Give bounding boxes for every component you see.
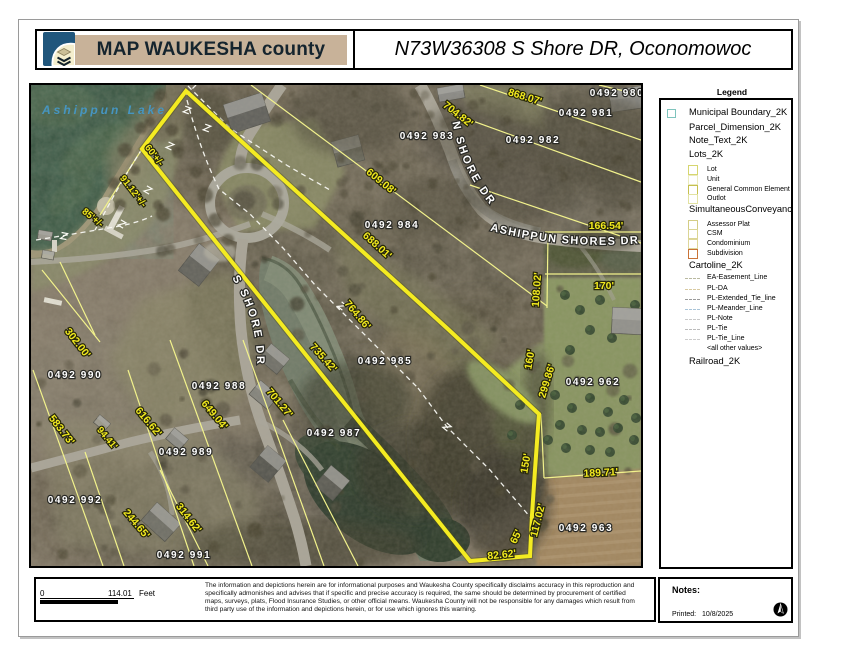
svg-text:0492 981: 0492 981 [559,108,614,119]
svg-text:0492 963: 0492 963 [559,523,614,534]
svg-text:0492 985: 0492 985 [358,356,413,367]
svg-text:189.71': 189.71' [583,466,618,480]
svg-text:0492 983: 0492 983 [400,131,455,142]
svg-text:0492 980: 0492 980 [590,88,641,99]
svg-text:0492 962: 0492 962 [566,377,621,388]
svg-text:Ashippun Lake: Ashippun Lake [41,103,167,117]
svg-text:0492 989: 0492 989 [159,447,214,458]
svg-text:0492 992: 0492 992 [48,495,103,506]
svg-text:0492 984: 0492 984 [365,220,420,231]
svg-text:0492 987: 0492 987 [307,428,362,439]
svg-text:108.02': 108.02' [530,272,544,307]
svg-text:166.54': 166.54' [589,220,624,232]
svg-text:0492 991: 0492 991 [157,550,212,561]
svg-text:0492 990: 0492 990 [48,370,103,381]
svg-text:170': 170' [594,280,614,292]
svg-text:0492 988: 0492 988 [192,381,247,392]
svg-text:0492 982: 0492 982 [506,135,561,146]
